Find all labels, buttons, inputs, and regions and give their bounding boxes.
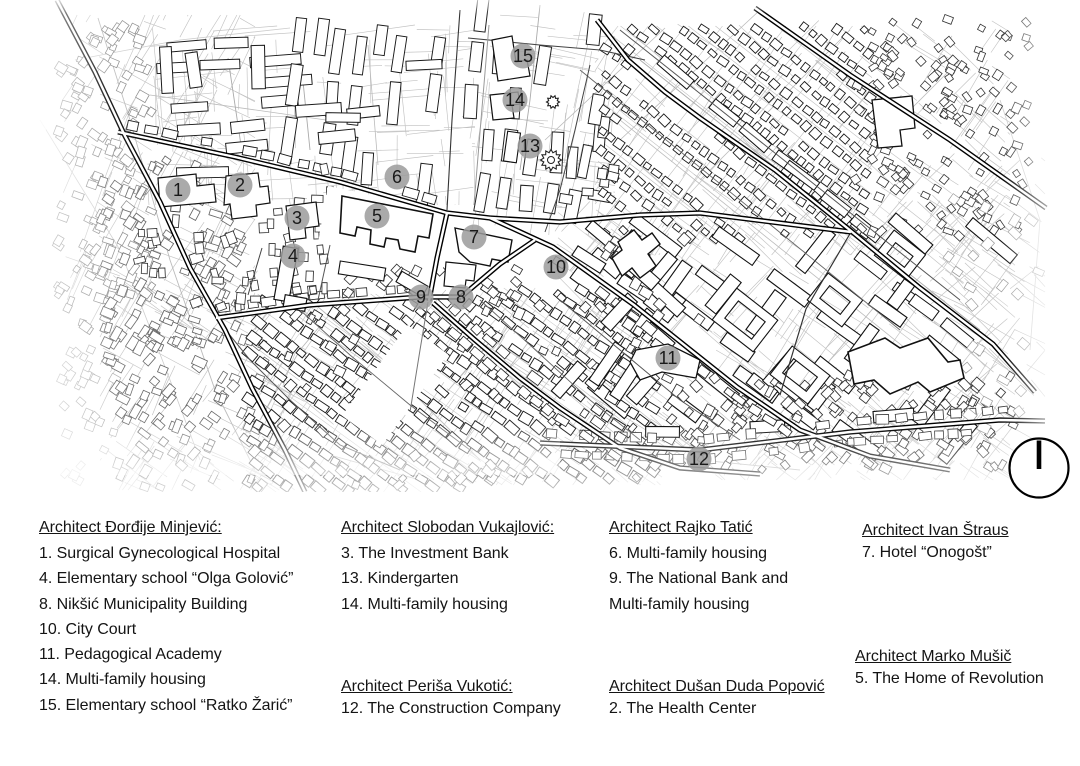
svg-text:8: 8 [456,287,466,307]
svg-text:2: 2 [235,175,245,195]
svg-text:13: 13 [520,136,540,156]
svg-text:14: 14 [505,90,525,110]
svg-text:7: 7 [469,227,479,247]
svg-text:3: 3 [292,208,302,228]
svg-text:12: 12 [689,449,709,469]
svg-text:9: 9 [416,287,426,307]
svg-text:4: 4 [288,246,298,266]
svg-text:1: 1 [173,180,183,200]
svg-text:11: 11 [659,348,678,368]
svg-text:10: 10 [546,257,566,277]
svg-text:5: 5 [372,206,382,226]
svg-text:6: 6 [392,167,402,187]
svg-text:15: 15 [513,46,533,66]
